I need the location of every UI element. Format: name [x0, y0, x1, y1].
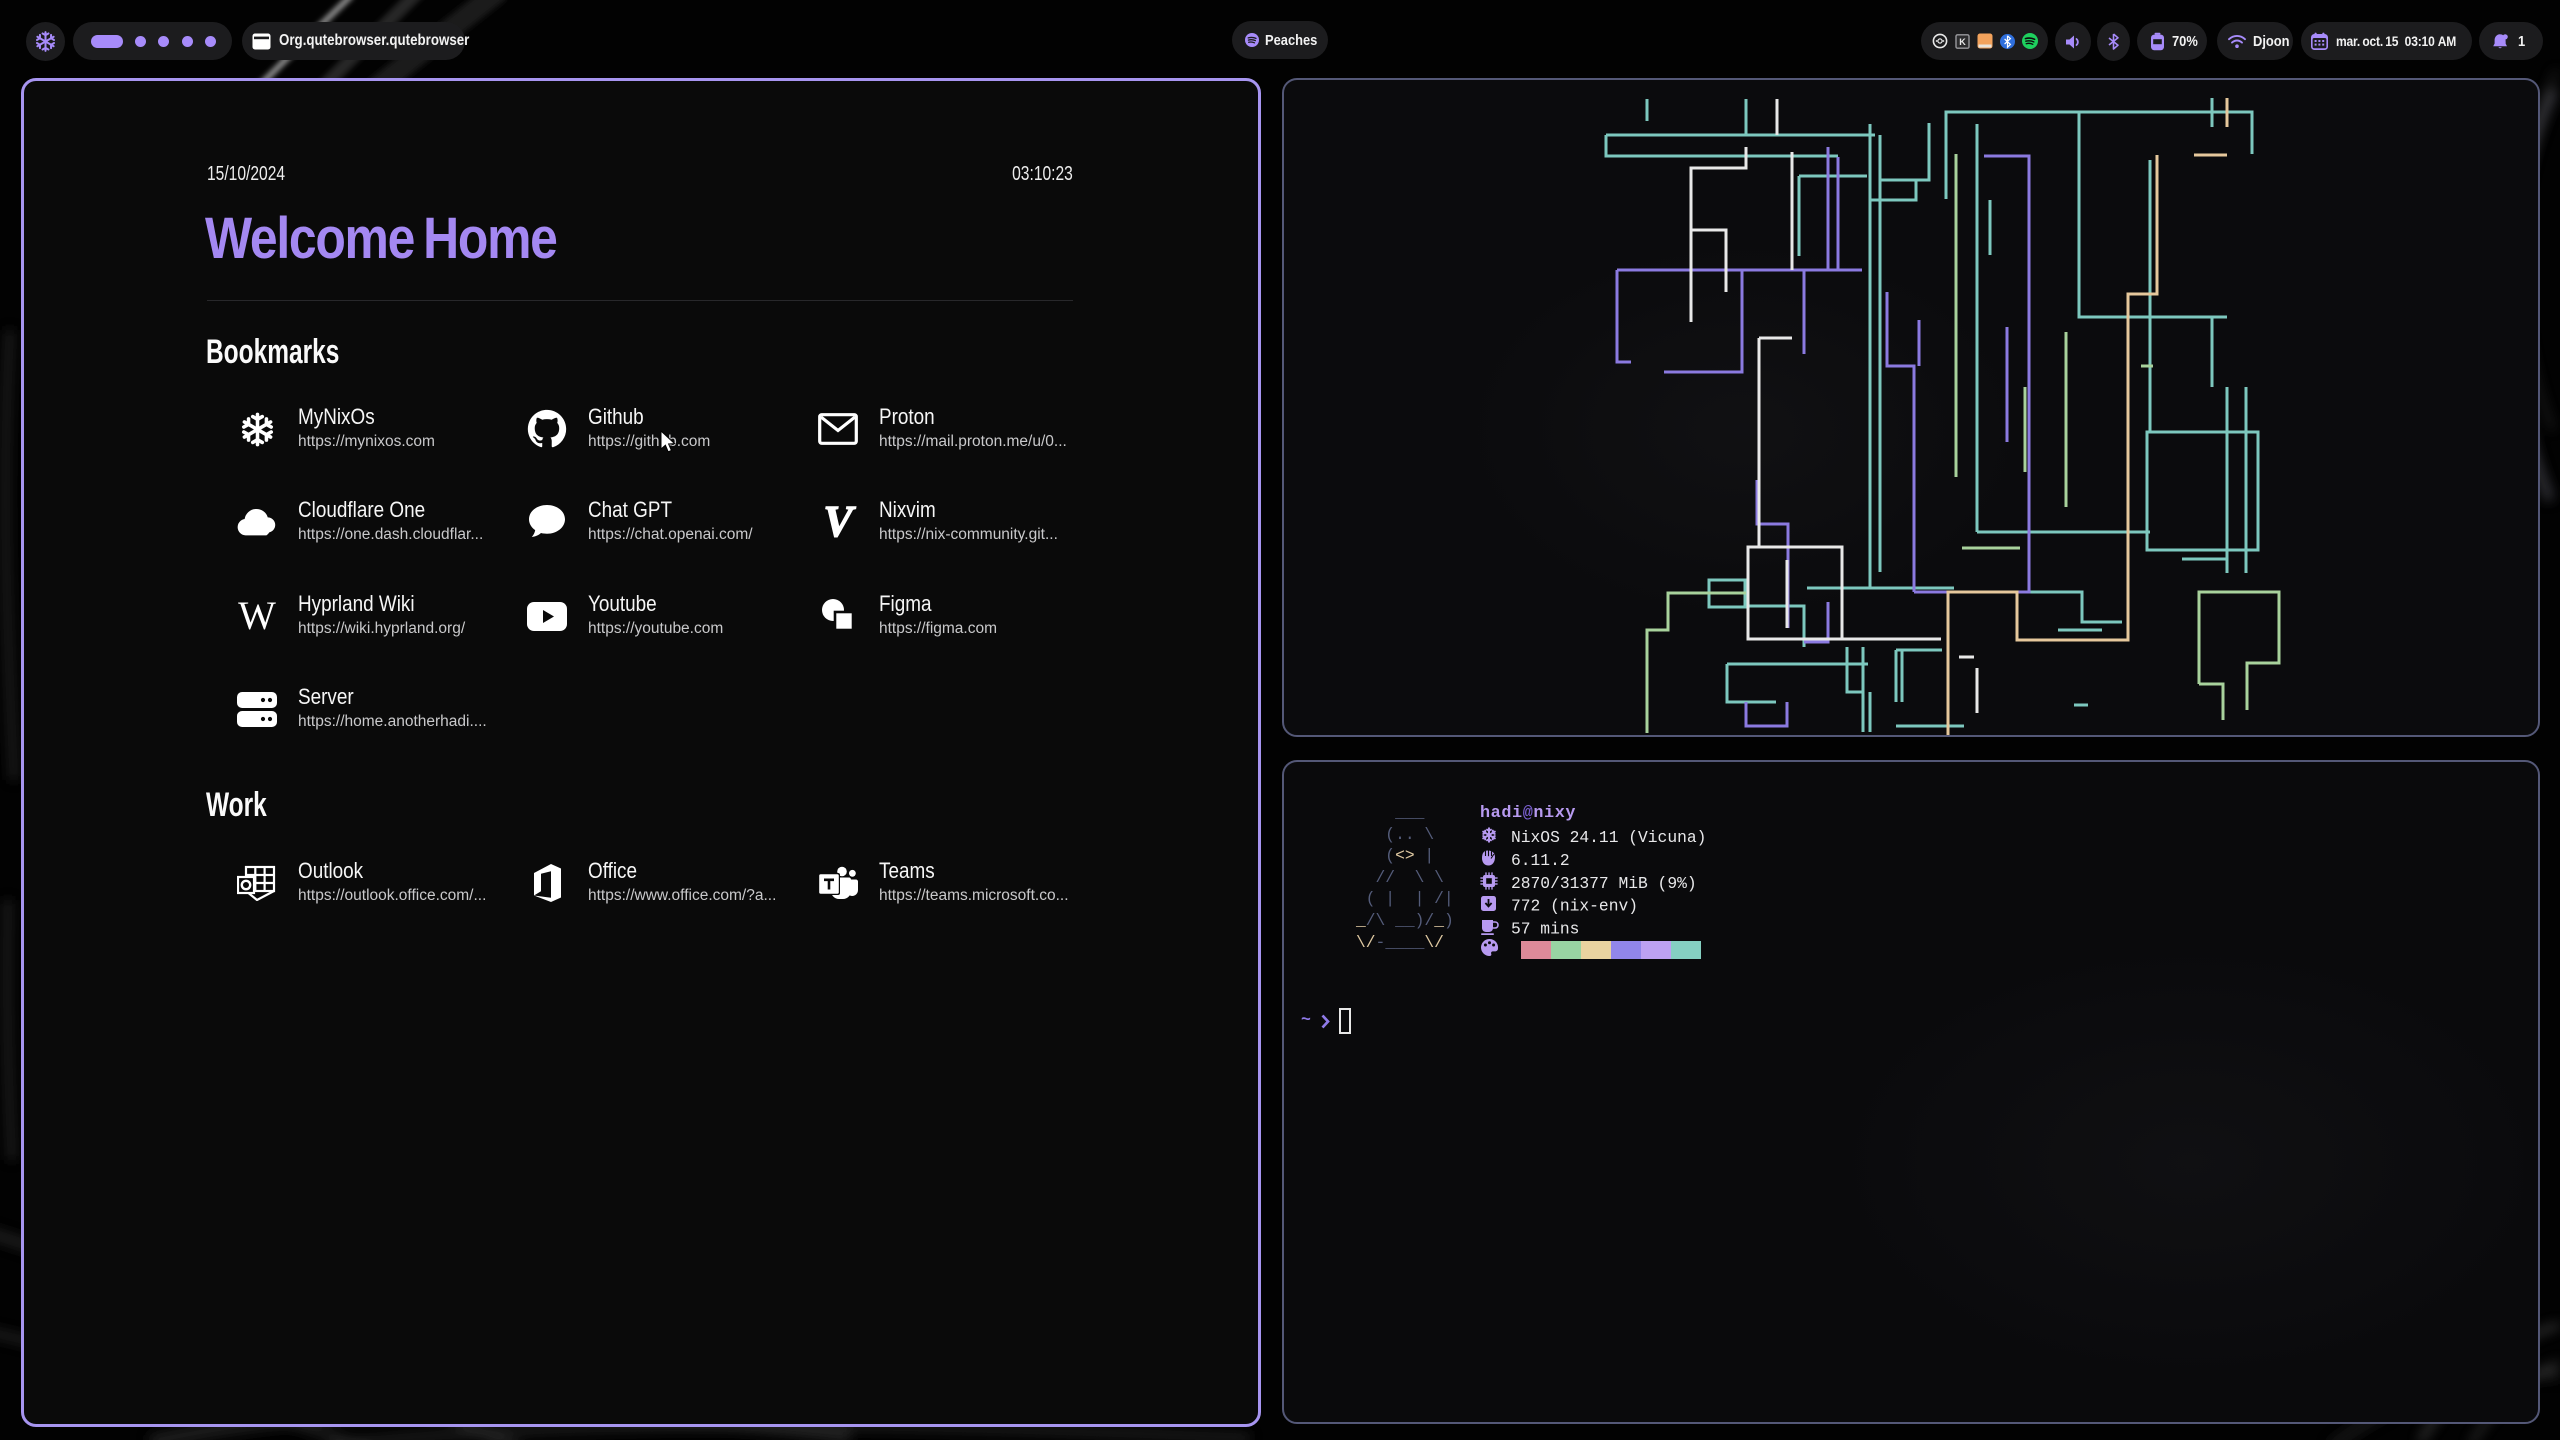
svg-text:K: K	[1959, 37, 1966, 47]
